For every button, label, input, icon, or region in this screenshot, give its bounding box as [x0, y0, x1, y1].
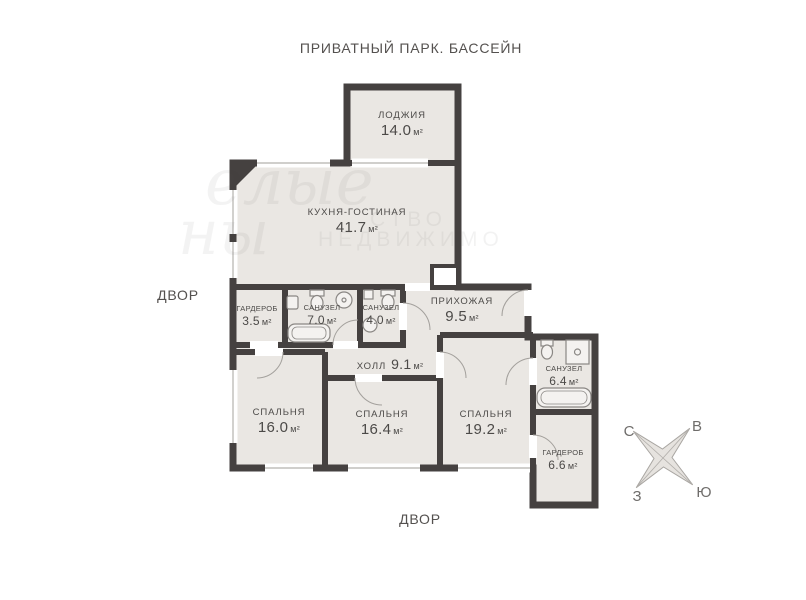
compass-north-label: С [620, 423, 638, 440]
floorplan-drawing [0, 0, 806, 600]
room-label-wardrobe-1: ГАРДЕРОБ 3.5м² [226, 304, 288, 328]
compass-south-label: Ю [695, 484, 713, 501]
room-label-kitchen-living: КУХНЯ-ГОСТИНАЯ 41.7м² [277, 207, 437, 236]
room-label-bedroom-3: СПАЛЬНЯ 19.2м² [436, 409, 536, 438]
floorplan-page: ПРИВАТНЫЙ ПАРК. БАССЕЙН ДВОР ДВОР [0, 0, 806, 600]
room-label-bathroom-2: САНУЗЕЛ 4.0м² [353, 303, 409, 327]
room-label-bathroom-3: САНУЗЕЛ 6.4м² [533, 364, 595, 388]
room-label-loggia: ЛОДЖИЯ 14.0м² [352, 110, 452, 139]
room-label-entry-hall: ПРИХОЖАЯ 9.5м² [412, 296, 512, 325]
compass-east-label: В [688, 418, 706, 435]
compass-rose-icon [633, 428, 692, 487]
compass-west-label: З [628, 488, 646, 505]
room-label-wardrobe-2: ГАРДЕРОБ 6.6м² [532, 448, 594, 472]
room-label-hall: ХОЛЛ 9.1м² [330, 356, 450, 372]
room-label-bedroom-1: СПАЛЬНЯ 16.0м² [229, 407, 329, 436]
room-label-bedroom-2: СПАЛЬНЯ 16.4м² [332, 409, 432, 438]
shower-icon [566, 340, 589, 364]
sink-icon [364, 290, 373, 299]
room-label-bathroom-1: САНУЗЕЛ 7.0м² [287, 303, 357, 327]
shaft-box [432, 266, 458, 287]
